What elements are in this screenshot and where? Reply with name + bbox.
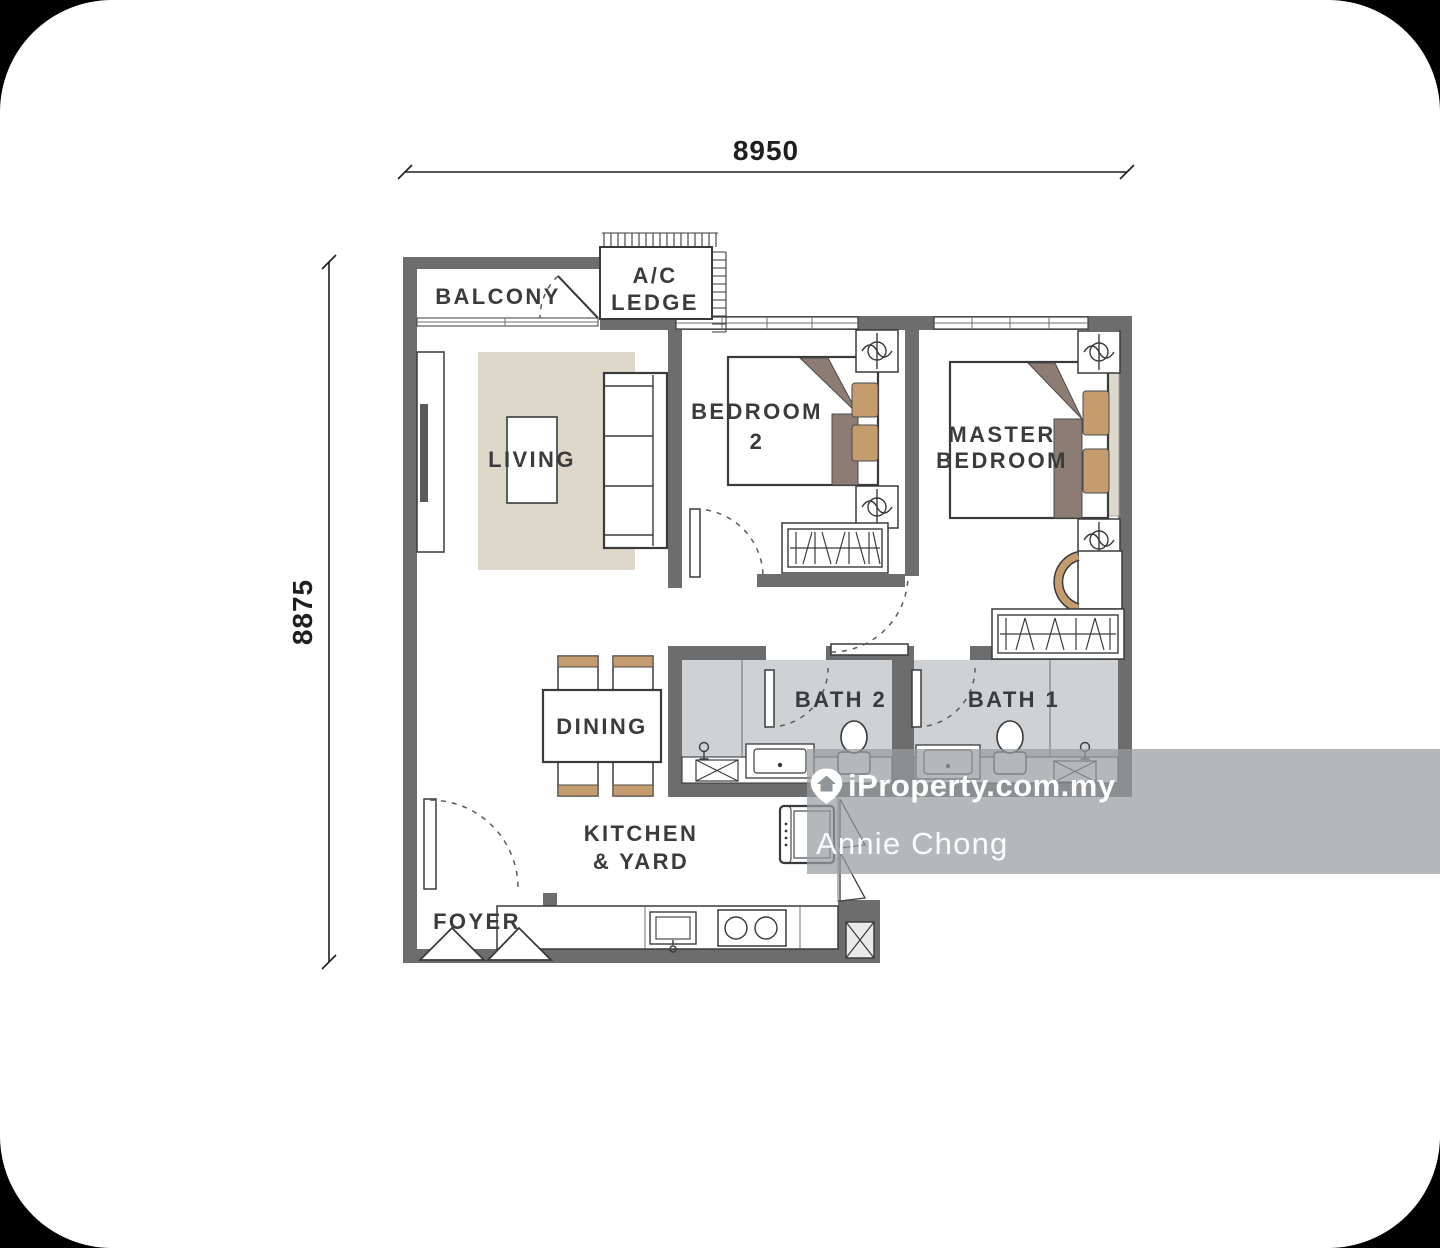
watermark: iProperty.com.my Annie Chong: [807, 749, 1440, 874]
bedroom2-wardrobe: [782, 523, 888, 573]
wall-balcony-top: [403, 257, 615, 269]
label-balcony: BALCONY: [435, 284, 561, 309]
bath2-door-leaf: [765, 670, 774, 727]
label-bedroom2-line2: 2: [750, 429, 765, 454]
wall-bedroom2-bottom: [757, 574, 905, 587]
label-ac-line2: LEDGE: [611, 290, 699, 315]
label-kitchen-line1: KITCHEN: [584, 821, 699, 846]
master-dresser: [1058, 551, 1122, 609]
kitchen-stove: [718, 910, 786, 946]
floorplan-svg: 8950 8875: [0, 0, 1440, 1248]
foyer-door-swing: [430, 800, 518, 888]
floorplan-paper: 8950 8875: [0, 0, 1440, 1248]
wall-bath2-top-left: [668, 646, 766, 660]
dimension-left: 8875: [287, 255, 336, 969]
bedroom2-nightstand-bottom-icon: [856, 486, 898, 528]
wall-bath2-left: [668, 646, 682, 797]
balcony-door-leaf: [558, 276, 598, 318]
tv-screen: [420, 404, 428, 502]
foyer-door-leaf: [424, 799, 436, 889]
label-kitchen-line2: & YARD: [593, 849, 689, 874]
label-master-line2: BEDROOM: [936, 448, 1068, 473]
ac-ledge-comb-top: [602, 233, 718, 247]
wall-bedroom2-left: [668, 330, 682, 588]
label-bedroom2-line1: BEDROOM: [691, 399, 823, 424]
dimension-left-label: 8875: [287, 579, 318, 645]
bedroom2-door-swing: [695, 509, 763, 577]
label-bath2: BATH 2: [795, 687, 887, 712]
label-bath1: BATH 1: [968, 687, 1060, 712]
label-master-line1: MASTER: [948, 422, 1055, 447]
service-shaft: [846, 922, 874, 958]
floorplan-image: 8950 8875: [0, 0, 1440, 1248]
watermark-agent: Annie Chong: [816, 826, 1008, 861]
sofa: [604, 373, 667, 548]
bedroom2-nightstand-top-icon: [856, 330, 898, 372]
bedroom2-door-leaf: [690, 509, 700, 577]
wall-left: [403, 257, 417, 963]
label-dining: DINING: [556, 714, 647, 739]
bath2-vanity: [746, 744, 814, 778]
master-door-leaf: [831, 644, 908, 655]
master-headboard: [1108, 364, 1119, 516]
bath2-heater-box: [696, 760, 738, 781]
master-nightstand-top-icon: [1078, 331, 1120, 373]
master-wardrobe: [992, 609, 1124, 659]
bath1-door-leaf: [912, 670, 921, 727]
watermark-brand: iProperty.com.my: [848, 768, 1116, 803]
label-living: LIVING: [488, 447, 576, 472]
bedroom2: [690, 330, 898, 577]
label-ac-line1: A/C: [632, 263, 677, 288]
dimension-top: 8950: [398, 135, 1134, 179]
dimension-top-label: 8950: [733, 135, 799, 166]
wall-bedroom-divider: [905, 330, 919, 576]
label-foyer: FOYER: [433, 909, 521, 934]
